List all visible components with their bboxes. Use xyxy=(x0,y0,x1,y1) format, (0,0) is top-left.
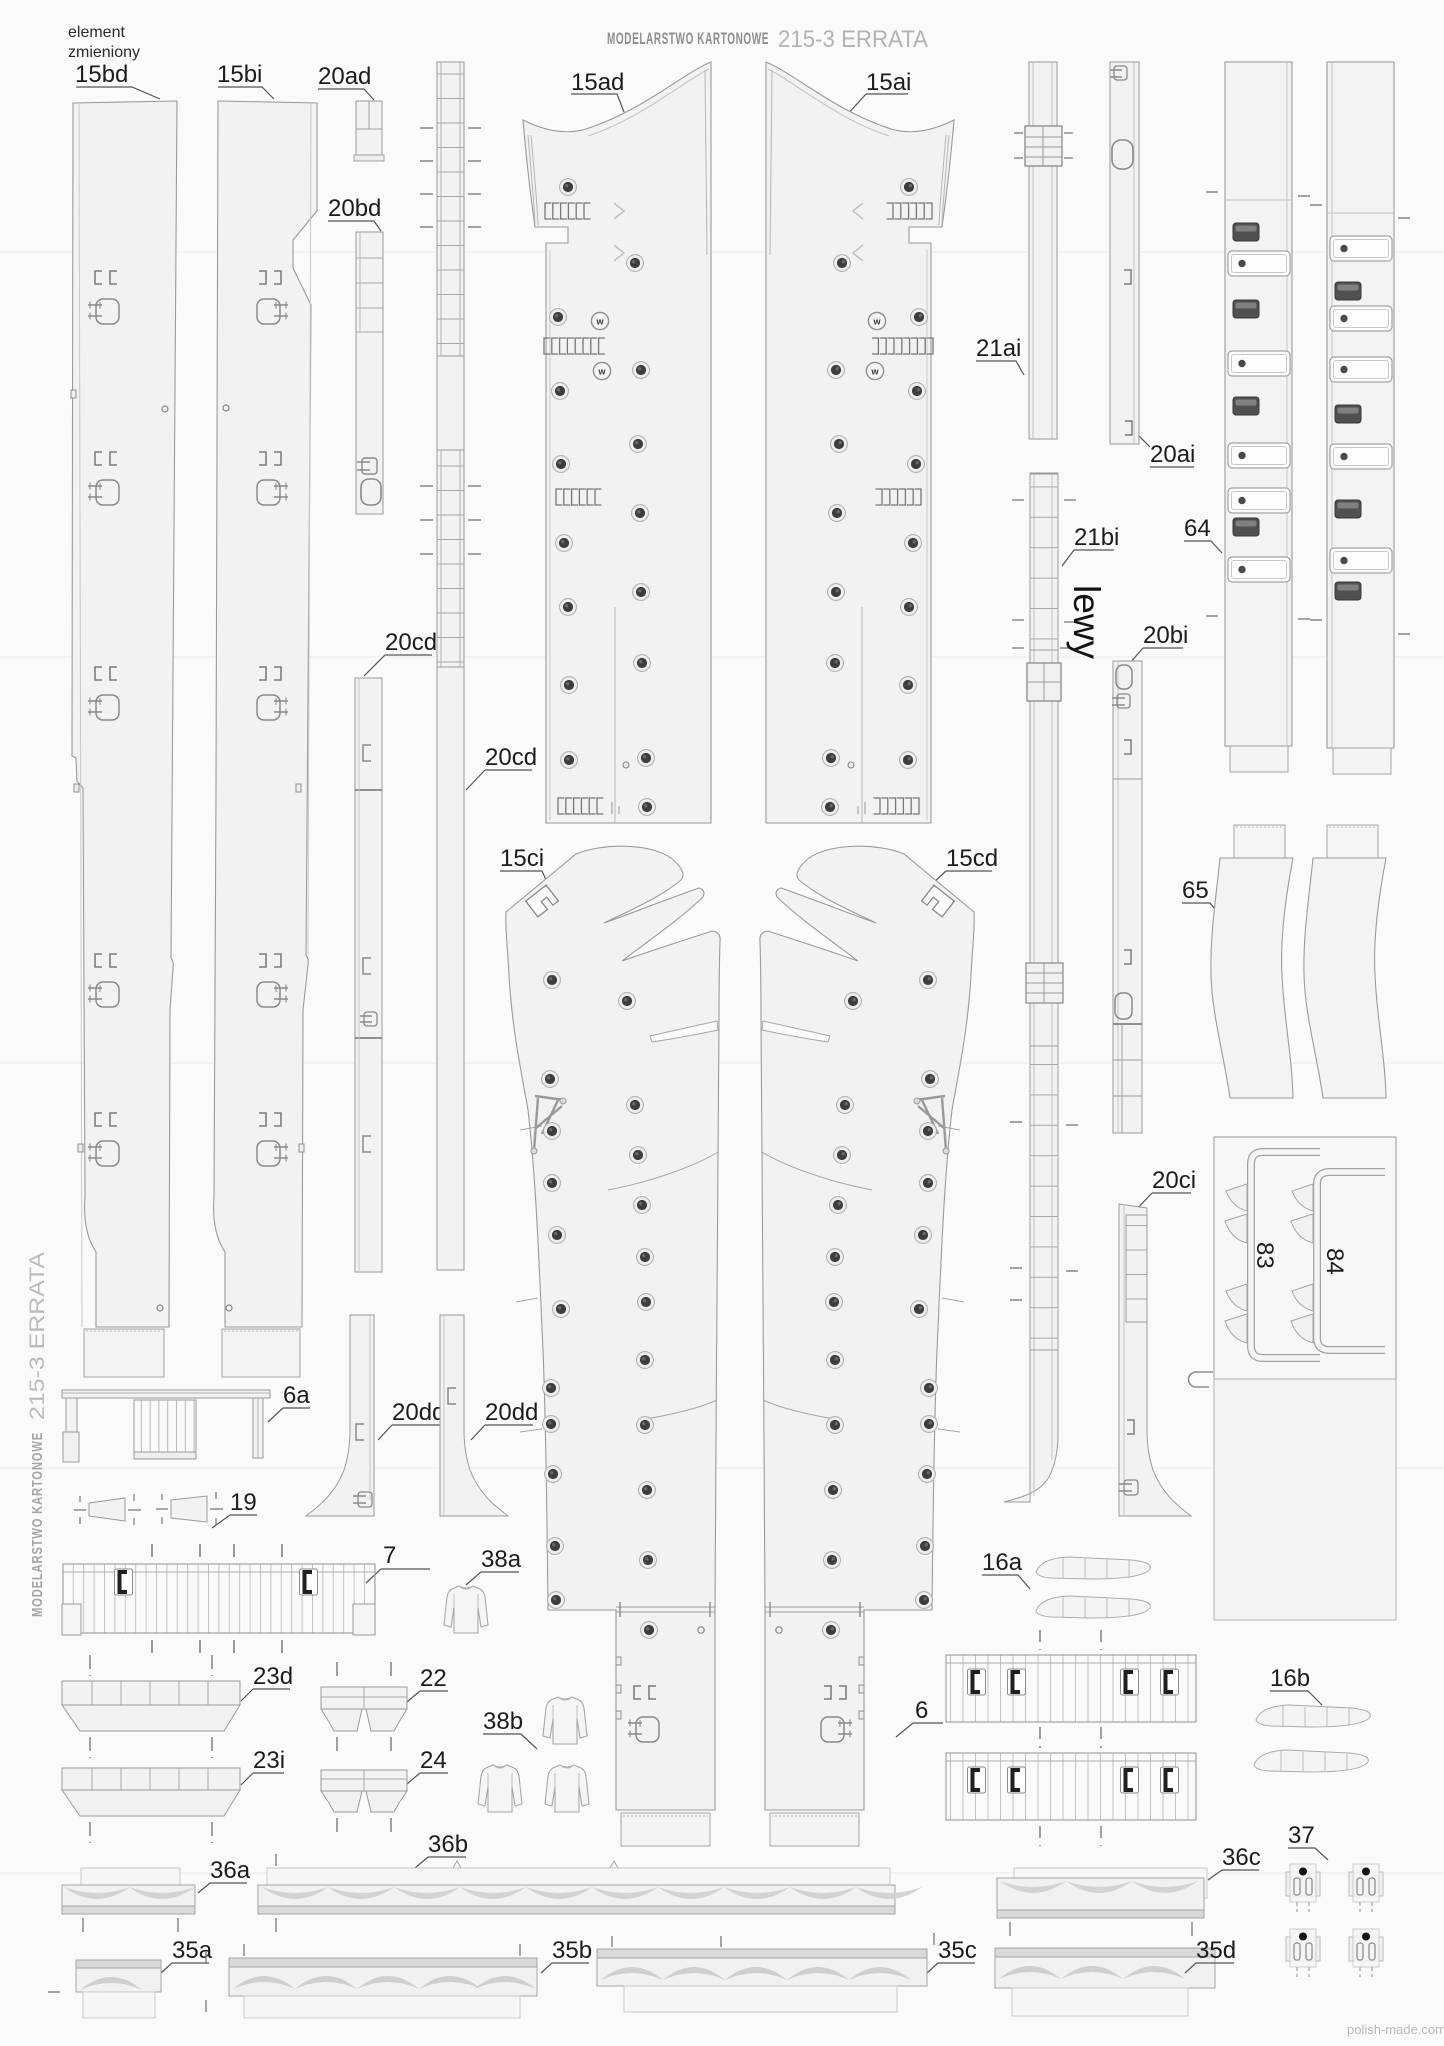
svg-text:64: 64 xyxy=(1184,515,1211,542)
svg-text:65: 65 xyxy=(1182,877,1209,904)
svg-text:16b: 16b xyxy=(1270,1665,1310,1692)
svg-text:20bi: 20bi xyxy=(1143,622,1188,649)
svg-text:element: element xyxy=(68,24,125,41)
svg-text:15ai: 15ai xyxy=(866,69,911,96)
svg-text:16a: 16a xyxy=(982,1549,1023,1576)
svg-text:lewy: lewy xyxy=(1066,585,1107,660)
svg-text:20cd: 20cd xyxy=(485,744,537,771)
svg-text:36c: 36c xyxy=(1222,1844,1261,1871)
svg-text:84: 84 xyxy=(1321,1248,1348,1275)
svg-text:20dd: 20dd xyxy=(392,1399,445,1426)
svg-text:zmieniony: zmieniony xyxy=(68,44,140,61)
svg-text:7: 7 xyxy=(383,1542,396,1569)
svg-text:20ad: 20ad xyxy=(318,63,371,90)
svg-text:22: 22 xyxy=(420,1665,447,1692)
svg-text:35d: 35d xyxy=(1196,1937,1236,1964)
svg-text:23d: 23d xyxy=(253,1663,293,1690)
svg-text:38b: 38b xyxy=(483,1708,523,1735)
svg-text:15ci: 15ci xyxy=(500,845,544,872)
svg-text:23i: 23i xyxy=(253,1747,285,1774)
svg-text:15cd: 15cd xyxy=(946,845,998,872)
svg-text:21ai: 21ai xyxy=(976,335,1021,362)
svg-text:19: 19 xyxy=(230,1489,257,1516)
svg-text:83: 83 xyxy=(1251,1242,1278,1269)
svg-text:20ci: 20ci xyxy=(1152,1167,1196,1194)
svg-text:6a: 6a xyxy=(283,1382,310,1409)
svg-text:15bd: 15bd xyxy=(75,61,128,88)
svg-text:MODELARSTWO KARTONOWE: MODELARSTWO KARTONOWE xyxy=(607,29,769,48)
svg-text:MODELARSTWO KARTONOWE: MODELARSTWO KARTONOWE xyxy=(29,1432,46,1617)
svg-text:215-3 ERRATA: 215-3 ERRATA xyxy=(778,26,928,53)
svg-text:20cd: 20cd xyxy=(385,629,437,656)
svg-text:15bi: 15bi xyxy=(217,61,262,88)
svg-text:15ad: 15ad xyxy=(571,69,624,96)
svg-text:37: 37 xyxy=(1288,1822,1315,1849)
svg-text:36b: 36b xyxy=(428,1831,468,1858)
svg-text:36a: 36a xyxy=(210,1857,251,1884)
svg-text:20dd: 20dd xyxy=(485,1399,538,1426)
svg-text:20bd: 20bd xyxy=(328,195,381,222)
svg-text:215-3 ERRATA: 215-3 ERRATA xyxy=(26,1252,49,1420)
svg-text:35c: 35c xyxy=(938,1937,977,1964)
svg-text:24: 24 xyxy=(420,1747,447,1774)
svg-text:20ai: 20ai xyxy=(1150,441,1195,468)
svg-text:38a: 38a xyxy=(481,1546,522,1573)
svg-text:35b: 35b xyxy=(552,1937,592,1964)
svg-text:polish-made.com: polish-made.com xyxy=(1347,2022,1444,2037)
svg-text:6: 6 xyxy=(915,1697,928,1724)
svg-text:21bi: 21bi xyxy=(1074,524,1119,551)
